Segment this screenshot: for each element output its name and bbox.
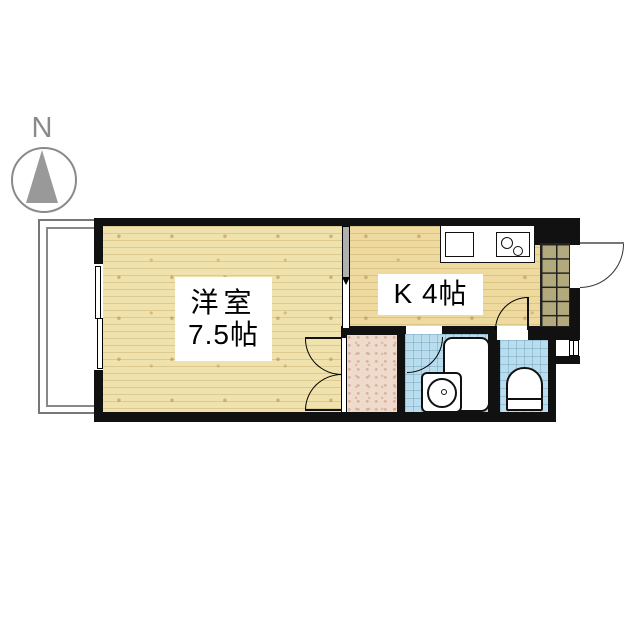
sliding-door-track-icon — [342, 278, 350, 328]
washbasin-drain-icon — [441, 389, 447, 395]
toilet-bowl-icon — [506, 367, 543, 401]
wall-bottom — [94, 412, 556, 422]
sliding-window-pane-icon — [95, 266, 101, 319]
wall-right-closure — [548, 356, 580, 364]
balcony-inner-rail — [46, 227, 98, 407]
entrance-door-swing-icon — [580, 244, 624, 288]
toilet-window-mullion-icon — [573, 340, 574, 356]
sliding-door-panel-icon — [342, 226, 350, 278]
sliding-door-arrow-icon — [342, 277, 350, 285]
bathroom-doorway — [406, 326, 442, 334]
compass-north-label: N — [27, 112, 57, 145]
wall-closet-bath — [397, 326, 405, 412]
kitchen-sink-icon — [445, 232, 474, 257]
wall-corner-block — [533, 218, 580, 245]
wall-right — [570, 288, 580, 340]
toilet-tank-icon — [506, 398, 543, 411]
sliding-window-pane-icon — [97, 318, 103, 369]
wall-toilet-right — [548, 333, 556, 412]
kitchen-name: K 4帖 — [393, 278, 467, 310]
western-room-name: 洋室 — [190, 287, 256, 319]
western-room-label: 洋室 7.5帖 — [175, 277, 272, 361]
stove-burner-icon — [513, 246, 523, 256]
floor-plan: N — [0, 0, 640, 640]
kitchen-label: K 4帖 — [378, 274, 483, 315]
toilet-window-icon — [569, 340, 579, 356]
stove-burner-icon — [501, 237, 513, 249]
closet-floor — [347, 335, 397, 412]
western-room-size: 7.5帖 — [188, 319, 259, 351]
entrance-tile-floor — [540, 243, 570, 327]
compass-needle-icon — [26, 150, 58, 203]
